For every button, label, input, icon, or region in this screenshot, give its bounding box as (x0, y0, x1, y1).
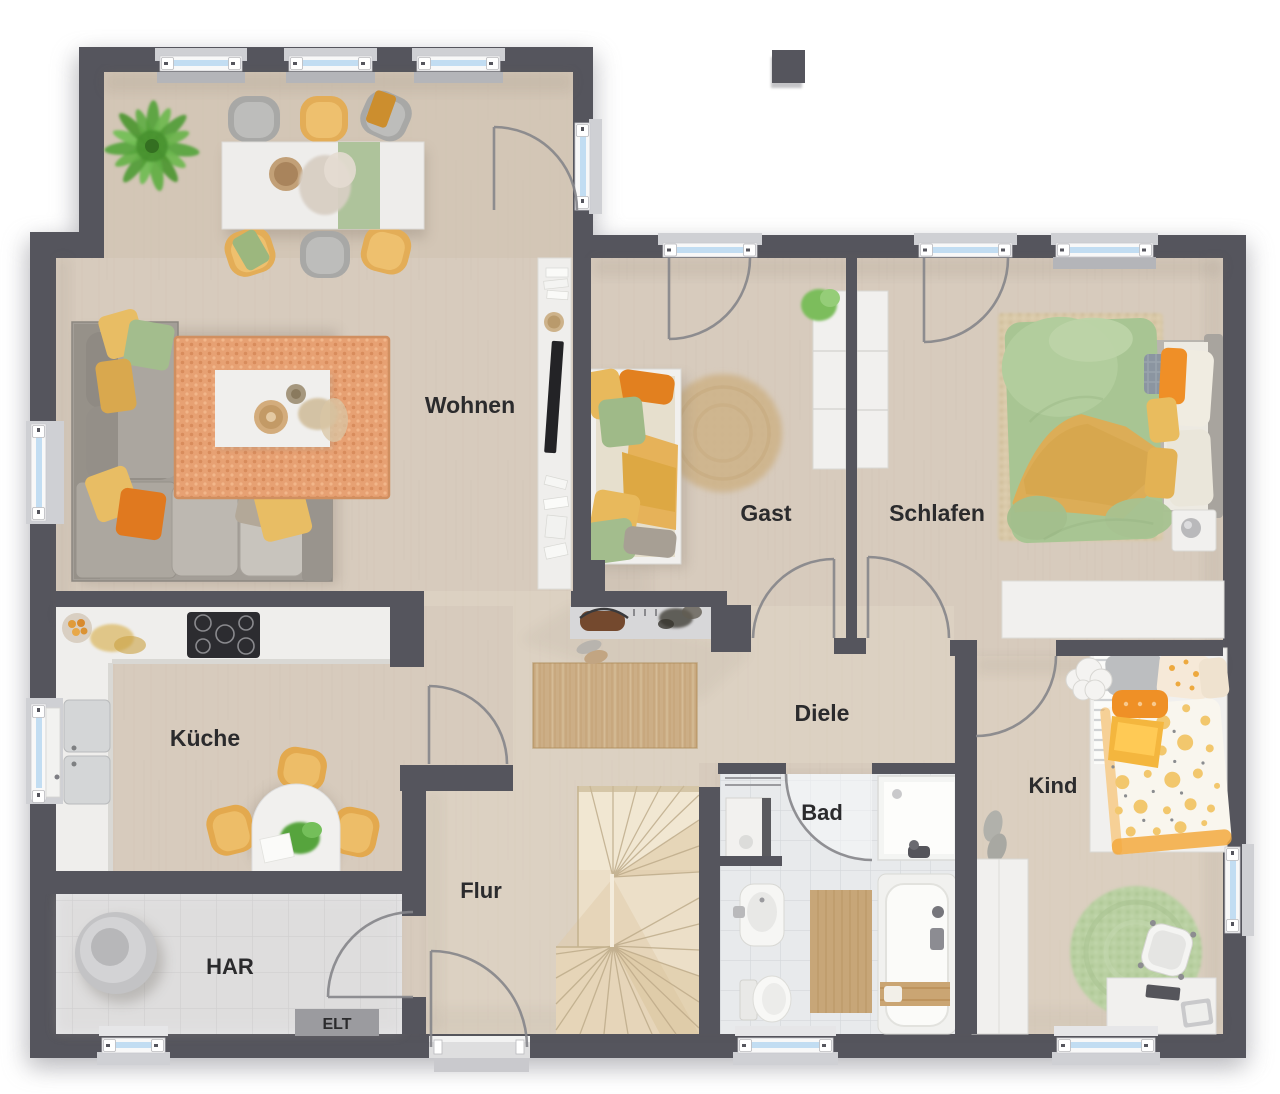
svg-text:Küche: Küche (170, 725, 240, 751)
svg-text:Flur: Flur (460, 878, 502, 903)
svg-text:Bad: Bad (801, 800, 843, 825)
svg-text:Diele: Diele (795, 700, 850, 726)
svg-text:HAR: HAR (206, 954, 254, 979)
svg-text:Schlafen: Schlafen (889, 500, 985, 526)
svg-text:Wohnen: Wohnen (425, 392, 515, 418)
svg-text:Gast: Gast (740, 500, 791, 526)
svg-text:Kind: Kind (1029, 773, 1078, 798)
svg-text:ELT: ELT (322, 1016, 351, 1033)
